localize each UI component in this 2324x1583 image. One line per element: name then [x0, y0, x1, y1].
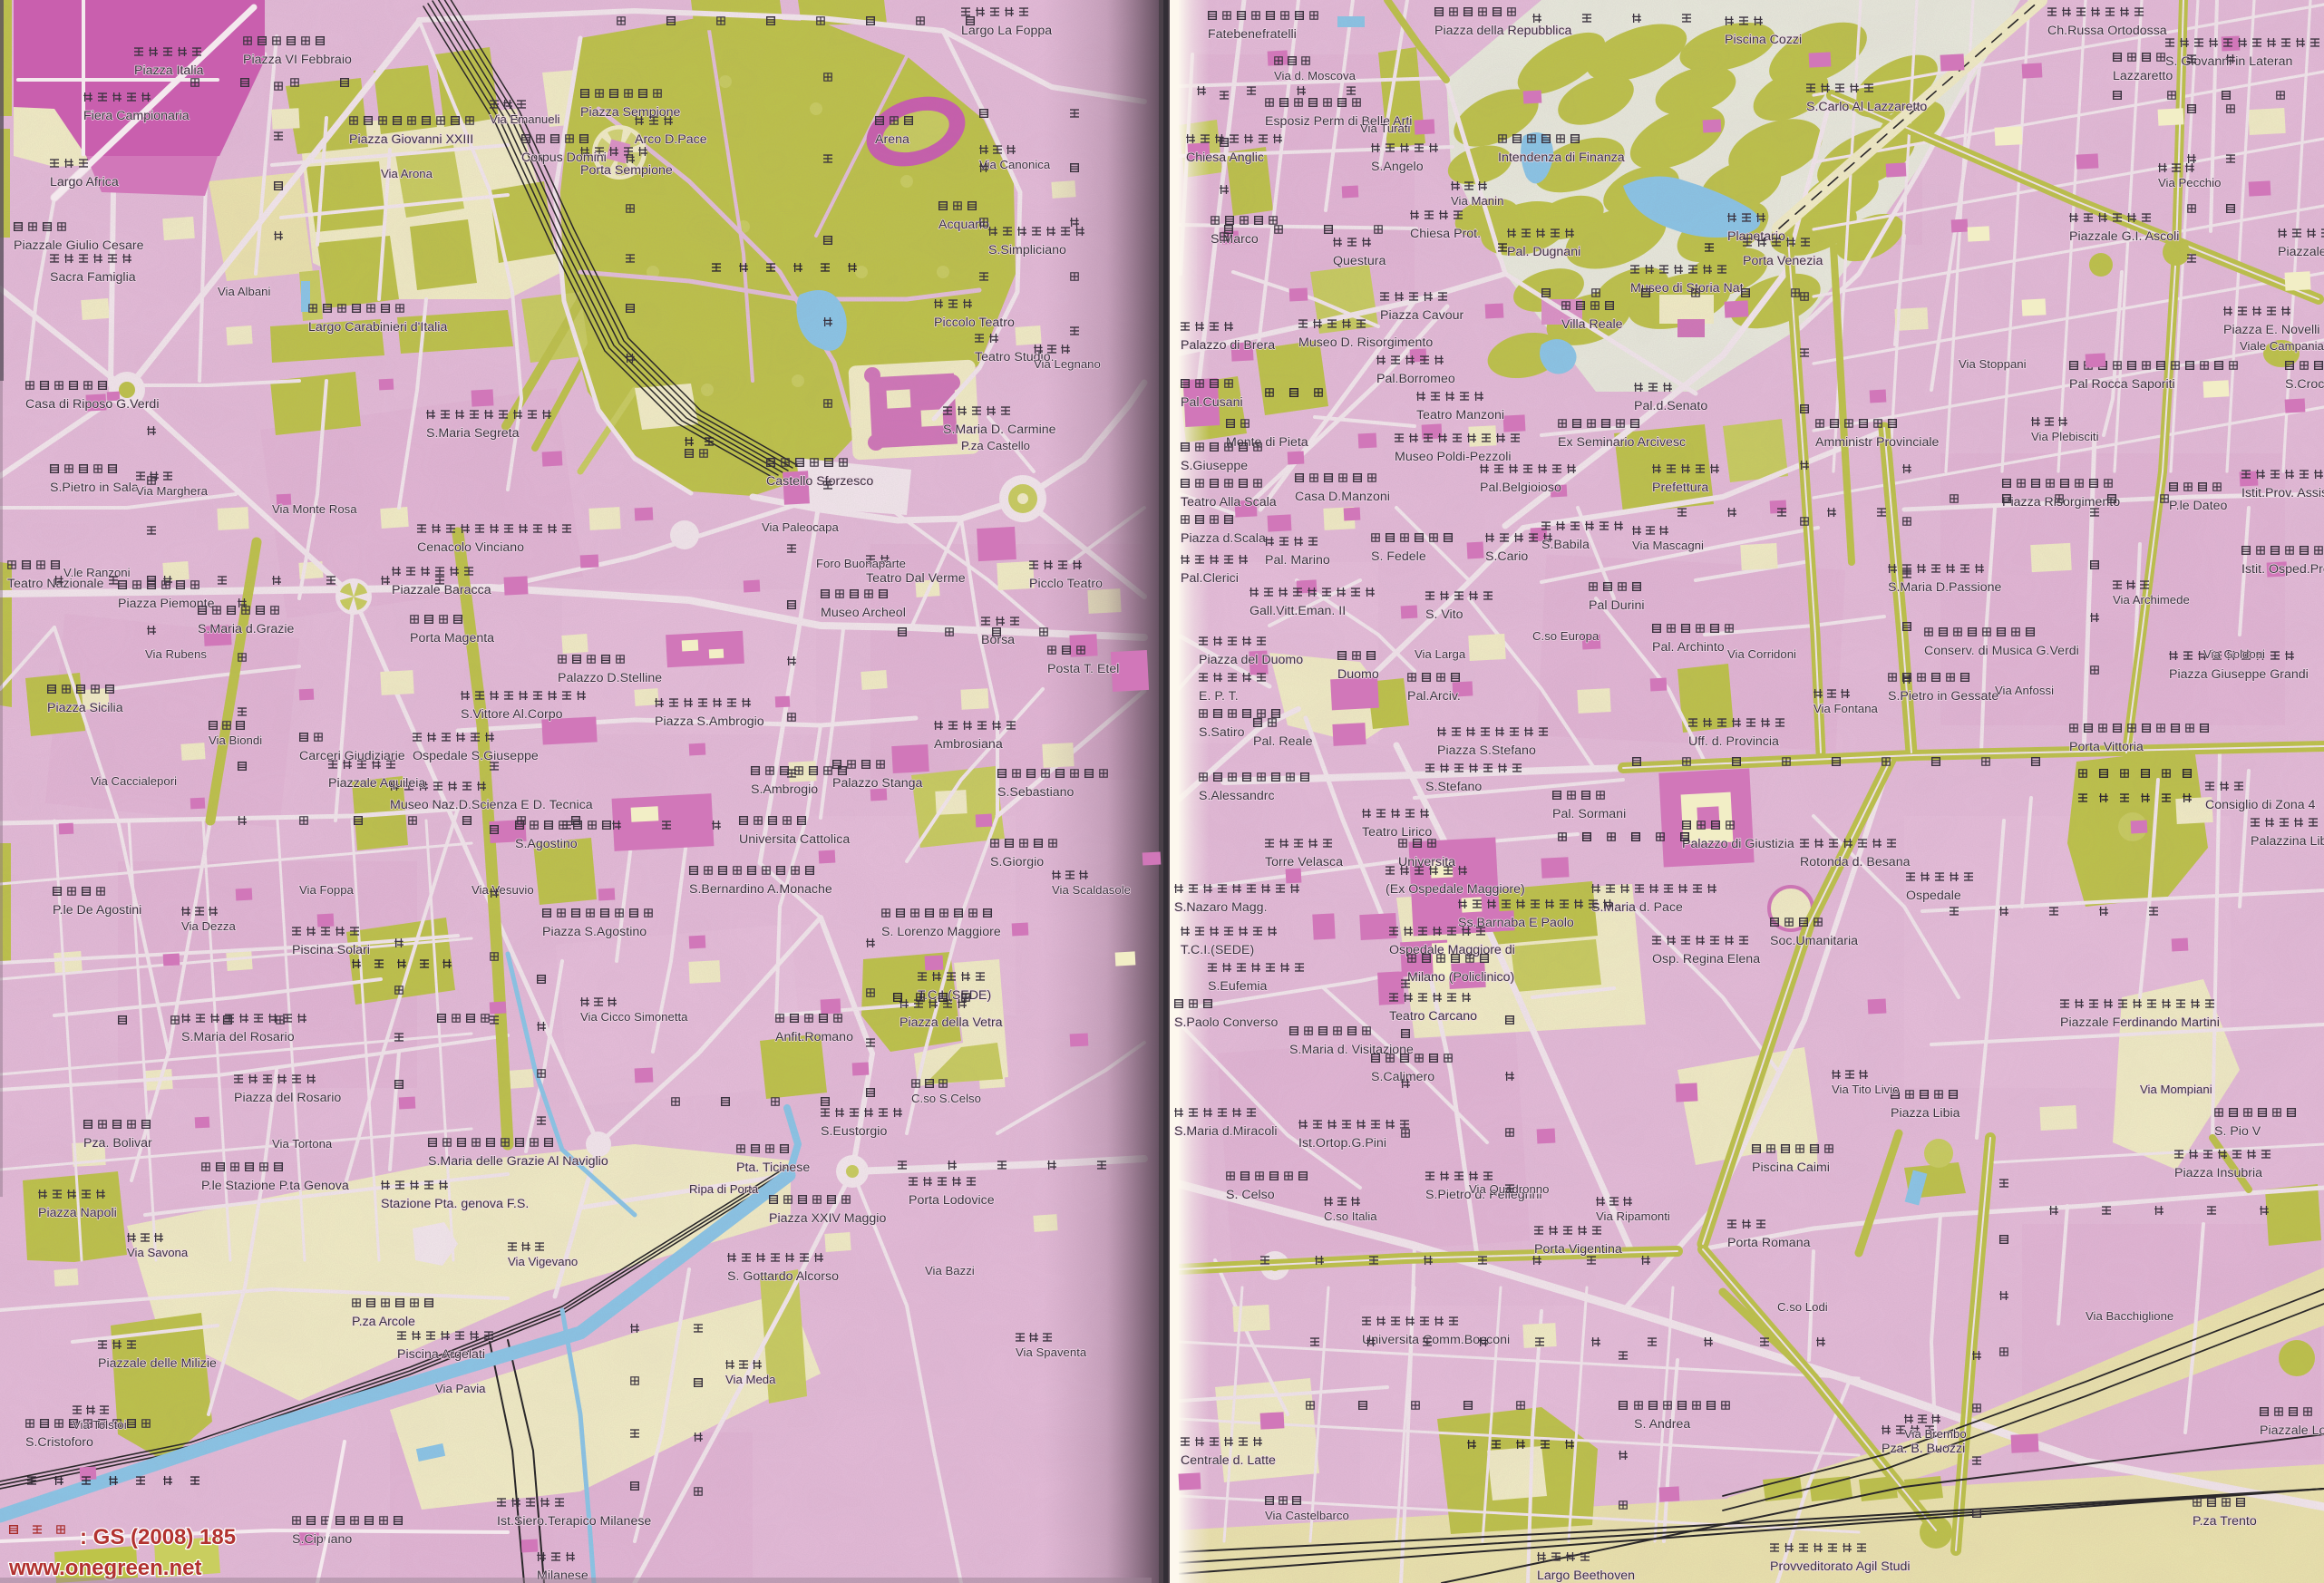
svg-text:Palazzo D.Stelline: Palazzo D.Stelline — [558, 671, 662, 685]
svg-text:Casa di Riposo G.Verdi: Casa di Riposo G.Verdi — [25, 397, 159, 412]
svg-text:Museo Poldi-Pezzoli: Museo Poldi-Pezzoli — [1395, 450, 1512, 464]
svg-text:Via Scaldasole: Via Scaldasole — [1052, 883, 1131, 897]
svg-text:Piazza d.Scala: Piazza d.Scala — [1181, 531, 1266, 546]
svg-text:Via Manin: Via Manin — [1451, 194, 1503, 208]
svg-text:S.Alessandrc: S.Alessandrc — [1199, 789, 1275, 803]
svg-text:P.za Arcole: P.za Arcole — [352, 1315, 415, 1329]
svg-text:Via Albani: Via Albani — [218, 285, 270, 298]
svg-text:Pal. Reale: Pal. Reale — [1253, 734, 1313, 749]
svg-text:Ospedale S.Giuseppe: Ospedale S.Giuseppe — [413, 749, 539, 763]
svg-text:S.Ambrogio: S.Ambrogio — [751, 782, 818, 797]
svg-text:S. Fedele: S. Fedele — [1371, 549, 1426, 564]
svg-text:S.Angelo: S.Angelo — [1371, 160, 1424, 174]
svg-text:Via Arona: Via Arona — [381, 167, 433, 180]
svg-text:S.Carlo Al Lazzaretto: S.Carlo Al Lazzaretto — [1806, 100, 1927, 114]
svg-text:Via d. Moscova: Via d. Moscova — [1274, 69, 1356, 83]
svg-text:Ex Seminario Arcivesc: Ex Seminario Arcivesc — [1558, 435, 1686, 450]
svg-text:Via Biondi: Via Biondi — [209, 733, 262, 747]
svg-text:Provveditorato Agil Studi: Provveditorato Agil Studi — [1770, 1559, 1911, 1574]
svg-text:Palazzo Stanga: Palazzo Stanga — [832, 776, 922, 791]
svg-text:S. Vito: S. Vito — [1425, 607, 1463, 622]
svg-text:S.Agostino: S.Agostino — [515, 837, 578, 851]
svg-text:Pta. Ticinese: Pta. Ticinese — [736, 1161, 810, 1175]
svg-text:Porta Sempione: Porta Sempione — [580, 163, 673, 178]
svg-text:Pal.Borromeo: Pal.Borromeo — [1376, 372, 1455, 386]
svg-text:Teatro Lirico: Teatro Lirico — [1362, 825, 1432, 840]
svg-text:Pal. Dugnani: Pal. Dugnani — [1507, 245, 1580, 259]
svg-text:S. Celso: S. Celso — [1226, 1188, 1275, 1202]
svg-text:Piscina Solari: Piscina Solari — [292, 943, 370, 957]
svg-text:Via Turati: Via Turati — [1360, 121, 1411, 135]
svg-text:Palazzo di Brera: Palazzo di Brera — [1181, 338, 1275, 353]
svg-text:S.Giuseppe: S.Giuseppe — [1181, 459, 1248, 473]
svg-text:Via Tortona: Via Tortona — [272, 1137, 333, 1151]
svg-text:Piazzale Baracca: Piazzale Baracca — [392, 583, 491, 597]
svg-text:Via Bazzi: Via Bazzi — [925, 1264, 975, 1277]
svg-text:S.Pietro in Sala: S.Pietro in Sala — [50, 481, 139, 495]
svg-text:Acquario: Acquario — [938, 218, 989, 232]
svg-text:S.Maria D. Carmine: S.Maria D. Carmine — [943, 422, 1056, 437]
svg-text:Intendenza di Finanza: Intendenza di Finanza — [1498, 151, 1625, 165]
svg-text:Teatro Dal Verme: Teatro Dal Verme — [866, 571, 966, 586]
svg-text:Piscina Caimi: Piscina Caimi — [1752, 1161, 1830, 1175]
svg-text:S. Gottardo Alcorso: S. Gottardo Alcorso — [727, 1269, 839, 1284]
svg-text:Piazza della Repubblica: Piazza della Repubblica — [1434, 24, 1572, 38]
svg-text:Via Legnano: Via Legnano — [1034, 357, 1101, 371]
svg-text:T.C.I.(SEDE): T.C.I.(SEDE) — [1181, 943, 1254, 957]
svg-text:Chiesa Prot.: Chiesa Prot. — [1410, 227, 1481, 241]
svg-text:Via Fontana: Via Fontana — [1813, 702, 1879, 715]
svg-text:Ch.Russa Ortodossa: Ch.Russa Ortodossa — [2047, 24, 2167, 38]
svg-text:S.Eustorgio: S.Eustorgio — [821, 1124, 887, 1139]
svg-text:Pal. Sormani: Pal. Sormani — [1552, 807, 1626, 821]
svg-text:Milano (Policlinico): Milano (Policlinico) — [1407, 970, 1514, 985]
svg-text:Pza. Bolivar: Pza. Bolivar — [83, 1136, 152, 1151]
svg-text:Via Brembo: Via Brembo — [1904, 1427, 1967, 1441]
svg-text:Universita Comm.Bocconi: Universita Comm.Bocconi — [1362, 1333, 1510, 1347]
svg-text:V.le Ranzoni: V.le Ranzoni — [63, 566, 131, 579]
svg-text:Pal.Belgioioso: Pal.Belgioioso — [1480, 481, 1561, 495]
svg-text:Rotonda d. Besana: Rotonda d. Besana — [1800, 855, 1911, 869]
svg-text:P.za Castello: P.za Castello — [961, 439, 1030, 452]
svg-text:S.Paolo Converso: S.Paolo Converso — [1174, 1015, 1278, 1030]
svg-text:S.Marco: S.Marco — [1211, 232, 1259, 247]
svg-text:Questura: Questura — [1333, 254, 1386, 268]
svg-text:Via Bacchiglione: Via Bacchiglione — [2086, 1309, 2173, 1323]
svg-text:Via Paleocapa: Via Paleocapa — [762, 520, 839, 534]
svg-text:Via Rubens: Via Rubens — [145, 647, 207, 661]
svg-text:Stazione Pta. genova F.S.: Stazione Pta. genova F.S. — [381, 1197, 529, 1211]
svg-text:Palazzina Liberty: Palazzina Liberty — [2251, 834, 2324, 849]
svg-text:Palazzo di Giustizia: Palazzo di Giustizia — [1682, 837, 1794, 851]
svg-text:P.le Dateo: P.le Dateo — [2169, 499, 2228, 513]
svg-text:S.Sebastiano: S.Sebastiano — [997, 785, 1074, 800]
svg-text:S.Maria d.Miracoli: S.Maria d.Miracoli — [1174, 1124, 1278, 1139]
svg-text:Ss.Barnaba E Paolo: Ss.Barnaba E Paolo — [1458, 916, 1574, 930]
svg-text:Via Vigevano: Via Vigevano — [508, 1255, 578, 1268]
svg-text:S.Giorgio: S.Giorgio — [990, 855, 1044, 869]
svg-text:Via Canonica: Via Canonica — [979, 158, 1051, 171]
svg-text:Largo Carabinieri d'Italia: Largo Carabinieri d'Italia — [308, 320, 447, 335]
svg-text:Pal Durini: Pal Durini — [1589, 598, 1645, 613]
svg-text:S.Croce: S.Croce — [2285, 377, 2324, 392]
svg-text:Piazza del Rosario: Piazza del Rosario — [234, 1091, 341, 1105]
svg-text:Via Goldoni: Via Goldoni — [2203, 647, 2265, 661]
svg-text:S.Cristoforo: S.Cristoforo — [25, 1435, 93, 1450]
svg-text:Porta Venezia: Porta Venezia — [1743, 254, 1823, 268]
svg-text:S.Maria delle Grazie Al Navigl: S.Maria delle Grazie Al Naviglio — [428, 1154, 608, 1169]
svg-text:Borsa: Borsa — [981, 633, 1015, 647]
svg-text:Duomo: Duomo — [1337, 667, 1379, 682]
svg-text:Piazzale Ferdinando Martini: Piazzale Ferdinando Martini — [2060, 1015, 2220, 1030]
svg-text:Ambrosiana: Ambrosiana — [934, 737, 1003, 752]
svg-text:S.Stefano: S.Stefano — [1425, 780, 1482, 794]
svg-text:Chiesa Anglic: Chiesa Anglic — [1186, 151, 1264, 165]
svg-text:S. Giovanni in Lateran: S. Giovanni in Lateran — [2165, 54, 2292, 69]
svg-text:Via Savona: Via Savona — [127, 1246, 189, 1259]
svg-text:C.so S.Celso: C.so S.Celso — [911, 1092, 981, 1105]
svg-text:Conserv. di Musica G.Verdi: Conserv. di Musica G.Verdi — [1924, 644, 2079, 658]
svg-text:Via Plebisciti: Via Plebisciti — [2031, 430, 2099, 443]
svg-text:Via Pavia: Via Pavia — [435, 1382, 486, 1395]
svg-text:Pal. Marino: Pal. Marino — [1265, 553, 1330, 568]
svg-text:Via Caccialepori: Via Caccialepori — [91, 774, 177, 788]
svg-text:Via Corridoni: Via Corridoni — [1727, 647, 1796, 661]
svg-text:Viale Campania: Viale Campania — [2240, 339, 2324, 353]
svg-text:Piazzale G.I. Ascoli: Piazzale G.I. Ascoli — [2278, 245, 2324, 259]
svg-text:Monte di Pieta: Monte di Pieta — [1226, 435, 1308, 450]
svg-text:Porta Lodovice: Porta Lodovice — [909, 1193, 995, 1208]
svg-text:Piazza Giuseppe Grandi: Piazza Giuseppe Grandi — [2169, 667, 2309, 682]
svg-text:Porta Magenta: Porta Magenta — [410, 631, 494, 646]
svg-text:Cenacolo Vinciano: Cenacolo Vinciano — [417, 540, 524, 555]
svg-text:Teatro Carcano: Teatro Carcano — [1389, 1009, 1477, 1024]
svg-text:Universita Cattolica: Universita Cattolica — [739, 832, 850, 847]
svg-text:Pal. Archinto: Pal. Archinto — [1652, 640, 1725, 655]
svg-text:Pal.d.Senato: Pal.d.Senato — [1634, 399, 1707, 413]
svg-text:Piazzale Aquileia: Piazzale Aquileia — [328, 776, 425, 791]
svg-text:Via Stoppani: Via Stoppani — [1959, 357, 2027, 371]
svg-text:E. P. T.: E. P. T. — [1199, 689, 1239, 704]
svg-text:Fiera Campionaria: Fiera Campionaria — [83, 109, 190, 123]
svg-text:S.Simpliciano: S.Simpliciano — [988, 243, 1066, 257]
svg-text:Piazza E. Novelli: Piazza E. Novelli — [2223, 323, 2319, 337]
svg-text:Via Meda: Via Meda — [725, 1373, 776, 1386]
svg-text:Piazzale Lodi: Piazzale Lodi — [2260, 1423, 2324, 1438]
svg-text:Corpus Domini: Corpus Domini — [521, 151, 607, 165]
svg-text:: GS (2008) 185: : GS (2008) 185 — [80, 1525, 236, 1549]
svg-text:Via Cicco Simonetta: Via Cicco Simonetta — [580, 1010, 688, 1024]
svg-text:Piazza Giovanni XXIII: Piazza Giovanni XXIII — [349, 132, 473, 147]
svg-text:Anfit.Romano: Anfit.Romano — [775, 1030, 853, 1044]
svg-text:S.Maria d. Visitazione: S.Maria d. Visitazione — [1289, 1043, 1414, 1057]
svg-text:Piazza del Duomo: Piazza del Duomo — [1199, 653, 1303, 667]
svg-text:P.za Trento: P.za Trento — [2193, 1514, 2257, 1529]
svg-text:Via Larga: Via Larga — [1415, 647, 1466, 661]
svg-text:Via Tolstoi: Via Tolstoi — [73, 1418, 127, 1432]
svg-text:Piazza Cavour: Piazza Cavour — [1380, 308, 1464, 323]
svg-text:Centrale d. Latte: Centrale d. Latte — [1181, 1453, 1276, 1468]
svg-text:Pal.Arciv.: Pal.Arciv. — [1407, 689, 1461, 704]
svg-text:Via Pecchio: Via Pecchio — [2158, 176, 2221, 189]
svg-text:Teatro Alla Scala: Teatro Alla Scala — [1181, 495, 1277, 510]
svg-text:Via Castelbarco: Via Castelbarco — [1265, 1509, 1349, 1522]
svg-text:Torre Velasca: Torre Velasca — [1265, 855, 1343, 869]
svg-text:Largo Africa: Largo Africa — [50, 175, 119, 189]
svg-text:Via Vesuvio: Via Vesuvio — [472, 883, 534, 897]
svg-text:C.so Italia: C.so Italia — [1324, 1209, 1377, 1223]
svg-text:www.onegreen.net: www.onegreen.net — [8, 1556, 201, 1580]
svg-text:S.Pietro in Gessate: S.Pietro in Gessate — [1888, 689, 1998, 704]
svg-text:Arco D.Pace: Arco D.Pace — [635, 132, 707, 147]
svg-text:(Ex Ospedale Maggiore): (Ex Ospedale Maggiore) — [1386, 882, 1525, 897]
svg-text:C.so Europa: C.so Europa — [1532, 629, 1600, 643]
svg-text:Villa Reale: Villa Reale — [1561, 317, 1623, 332]
svg-text:Piazza S.Stefano: Piazza S.Stefano — [1437, 743, 1536, 758]
svg-text:P.le De Agostini: P.le De Agostini — [53, 903, 141, 918]
svg-text:S.Vittore Al.Corpo: S.Vittore Al.Corpo — [461, 707, 563, 722]
svg-text:Via Anfossi: Via Anfossi — [1995, 684, 2054, 697]
svg-text:S.Babila: S.Babila — [1541, 538, 1590, 552]
svg-text:S.Maria d.Grazie: S.Maria d.Grazie — [198, 622, 295, 636]
svg-text:Porta Vittoria: Porta Vittoria — [2069, 740, 2144, 754]
svg-text:Porta Romana: Porta Romana — [1727, 1236, 1811, 1250]
svg-text:Piazza XXIV Maggio: Piazza XXIV Maggio — [769, 1211, 886, 1226]
svg-text:S.Maria D.Passione: S.Maria D.Passione — [1888, 580, 2001, 595]
svg-text:P.le Stazione P.ta Genova: P.le Stazione P.ta Genova — [201, 1179, 349, 1193]
svg-text:Via Emanueli: Via Emanueli — [490, 112, 560, 126]
svg-text:C.so Lodi: C.so Lodi — [1777, 1300, 1828, 1314]
svg-text:Porta Vigentina: Porta Vigentina — [1534, 1242, 1622, 1257]
svg-text:Piazza S.Ambrogio: Piazza S.Ambrogio — [655, 714, 764, 729]
svg-text:S. Andrea: S. Andrea — [1634, 1417, 1690, 1432]
svg-text:Pal Rocca Saporiti: Pal Rocca Saporiti — [2069, 377, 2175, 392]
svg-text:Piazza Napoli: Piazza Napoli — [38, 1206, 117, 1220]
svg-text:S. Lorenzo Maggiore: S. Lorenzo Maggiore — [881, 925, 1001, 939]
svg-text:S.Maria del Rosario: S.Maria del Rosario — [181, 1030, 295, 1044]
svg-text:S.Maria Segreta: S.Maria Segreta — [426, 426, 520, 441]
svg-text:Istit.Prov. Assistenza Infanzi: Istit.Prov. Assistenza Infanzia — [2241, 486, 2324, 500]
svg-text:Piscina Argelati: Piscina Argelati — [397, 1347, 485, 1362]
svg-text:Casa D.Manzoni: Casa D.Manzoni — [1295, 490, 1390, 504]
svg-text:Via Marghera: Via Marghera — [136, 484, 209, 498]
svg-text:Ospedale: Ospedale — [1906, 889, 1961, 903]
svg-text:T.C.I.(SEDE): T.C.I.(SEDE) — [918, 988, 991, 1003]
svg-text:Via Foppa: Via Foppa — [299, 883, 355, 897]
svg-text:Ist.Ortop.G.Pini: Ist.Ortop.G.Pini — [1298, 1136, 1386, 1151]
svg-text:Lazzaretto: Lazzaretto — [2113, 69, 2173, 83]
svg-text:Posta T. Etel: Posta T. Etel — [1047, 662, 1119, 676]
svg-text:Arena: Arena — [875, 132, 909, 147]
svg-text:Prefettura: Prefettura — [1652, 481, 1708, 495]
svg-text:Via Mascagni: Via Mascagni — [1632, 539, 1704, 552]
svg-text:S.Nazaro Magg.: S.Nazaro Magg. — [1174, 900, 1268, 915]
svg-text:S.Eufemia: S.Eufemia — [1208, 979, 1268, 994]
svg-text:Pal.Clerici: Pal.Clerici — [1181, 571, 1239, 586]
svg-text:S. Pio V: S. Pio V — [2214, 1124, 2261, 1139]
svg-text:Museo Archeol: Museo Archeol — [821, 606, 906, 620]
svg-text:Piazzale Giulio Cesare: Piazzale Giulio Cesare — [14, 238, 144, 253]
svg-text:Via Mompiani: Via Mompiani — [2140, 1083, 2212, 1096]
svg-text:Fatebenefratelli: Fatebenefratelli — [1208, 27, 1297, 42]
svg-text:Castello Sforzesco: Castello Sforzesco — [766, 474, 873, 489]
svg-text:Osp. Regina Elena: Osp. Regina Elena — [1652, 952, 1760, 966]
svg-text:Sacra Famiglia: Sacra Famiglia — [50, 270, 136, 285]
svg-text:Piazza Sicilia: Piazza Sicilia — [47, 701, 123, 715]
svg-text:Carceri Giudiziarie: Carceri Giudiziarie — [299, 749, 405, 763]
svg-text:Piazzale delle Milizie: Piazzale delle Milizie — [98, 1356, 217, 1371]
svg-text:Via Dezza: Via Dezza — [181, 919, 237, 933]
svg-text:Gall.Vitt.Eman. II: Gall.Vitt.Eman. II — [1250, 604, 1346, 618]
svg-text:Piazzale G.I. Ascoli: Piazzale G.I. Ascoli — [2069, 229, 2179, 244]
svg-text:Museo Naz.D.Scienza E D. Tecni: Museo Naz.D.Scienza E D. Tecnica — [390, 798, 593, 812]
svg-text:Piazza Italia: Piazza Italia — [134, 63, 204, 78]
svg-text:Museo D. Risorgimento: Museo D. Risorgimento — [1298, 335, 1433, 350]
svg-text:Largo La Foppa: Largo La Foppa — [961, 24, 1052, 38]
svg-text:Via Tito Livio: Via Tito Livio — [1832, 1083, 1900, 1096]
svg-text:Consiglio di Zona 4: Consiglio di Zona 4 — [2205, 798, 2316, 812]
svg-text:Istit. Osped.Prov. Maternita: Istit. Osped.Prov. Maternita — [2241, 562, 2324, 577]
svg-text:S.Cario: S.Cario — [1485, 549, 1528, 564]
svg-text:Pal.Cusani: Pal.Cusani — [1181, 395, 1243, 410]
svg-text:Via Ripamonti: Via Ripamonti — [1596, 1209, 1670, 1223]
svg-text:S.Bernardino A.Monache: S.Bernardino A.Monache — [689, 882, 832, 897]
svg-text:Piazza S.Agostino: Piazza S.Agostino — [542, 925, 647, 939]
svg-text:Pza. B. Buozzi: Pza. B. Buozzi — [1882, 1442, 1965, 1456]
svg-text:S.Satiro: S.Satiro — [1199, 725, 1245, 740]
svg-text:Ist.Siero.Terapico Milanese: Ist.Siero.Terapico Milanese — [497, 1514, 651, 1529]
svg-text:Piazza VI Febbraio: Piazza VI Febbraio — [243, 53, 352, 67]
svg-text:Via Monte Rosa: Via Monte Rosa — [272, 502, 357, 516]
svg-text:Via Spaventa: Via Spaventa — [1016, 1345, 1087, 1359]
svg-text:Uff. d. Provincia: Uff. d. Provincia — [1688, 734, 1779, 749]
svg-text:Foro Buonaparte: Foro Buonaparte — [816, 557, 906, 570]
svg-text:Soc.Umanitaria: Soc.Umanitaria — [1770, 934, 1858, 948]
svg-text:Piccolo Teatro: Piccolo Teatro — [934, 316, 1015, 330]
svg-text:Amministr Provinciale: Amministr Provinciale — [1815, 435, 1939, 450]
svg-text:S.Cipriano: S.Cipriano — [292, 1532, 352, 1547]
svg-text:Ripa di Porta: Ripa di Porta — [689, 1182, 759, 1196]
svg-text:Via Archimede: Via Archimede — [2113, 593, 2190, 607]
svg-text:Piazza Insubria: Piazza Insubria — [2174, 1166, 2262, 1180]
svg-text:Teatro Manzoni: Teatro Manzoni — [1416, 408, 1504, 422]
svg-text:Picclo Teatro: Picclo Teatro — [1029, 577, 1103, 591]
svg-text:Piazza Libia: Piazza Libia — [1891, 1106, 1960, 1121]
svg-text:Piscina Cozzi: Piscina Cozzi — [1725, 33, 1802, 47]
svg-text:Piazza della Vetra: Piazza della Vetra — [899, 1015, 1003, 1030]
